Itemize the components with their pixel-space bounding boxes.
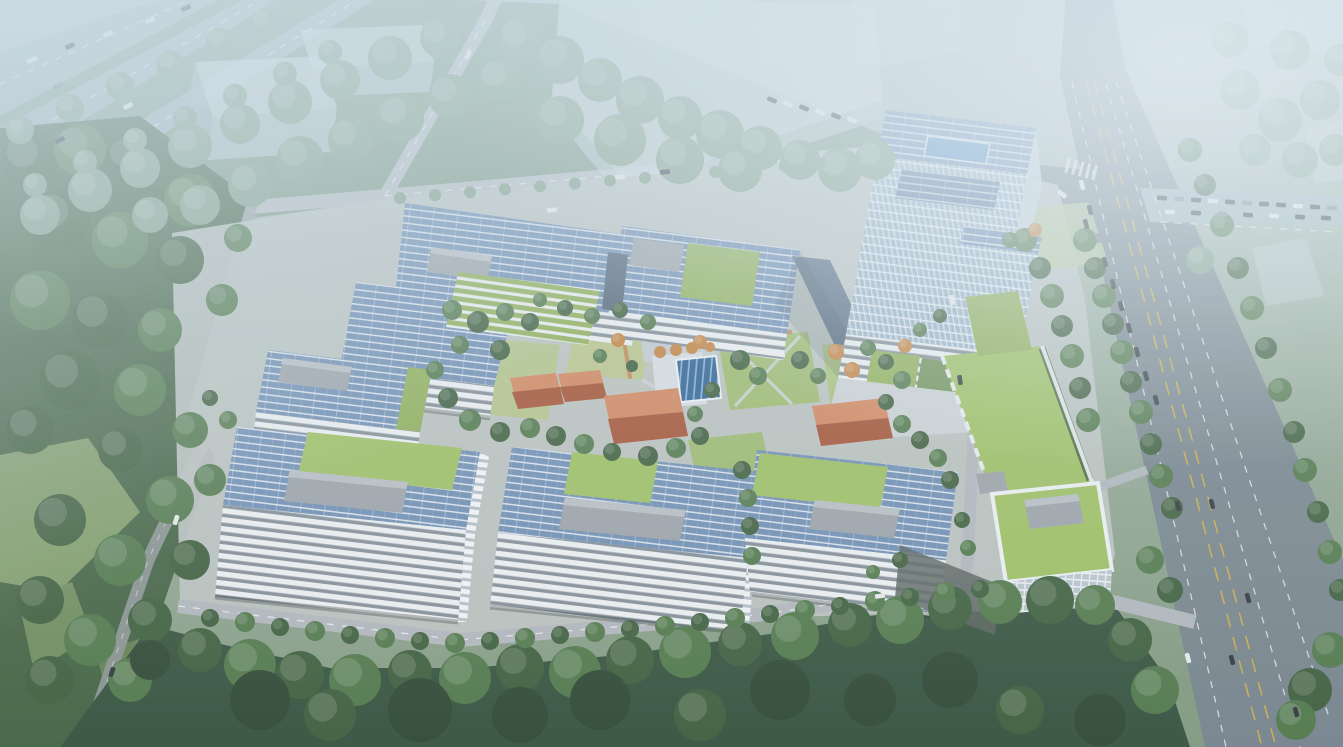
campus-aerial-rendering <box>0 0 1343 747</box>
haze-global <box>0 0 1343 747</box>
atmosphere-haze <box>0 0 1343 747</box>
rendering-canvas <box>0 0 1343 747</box>
